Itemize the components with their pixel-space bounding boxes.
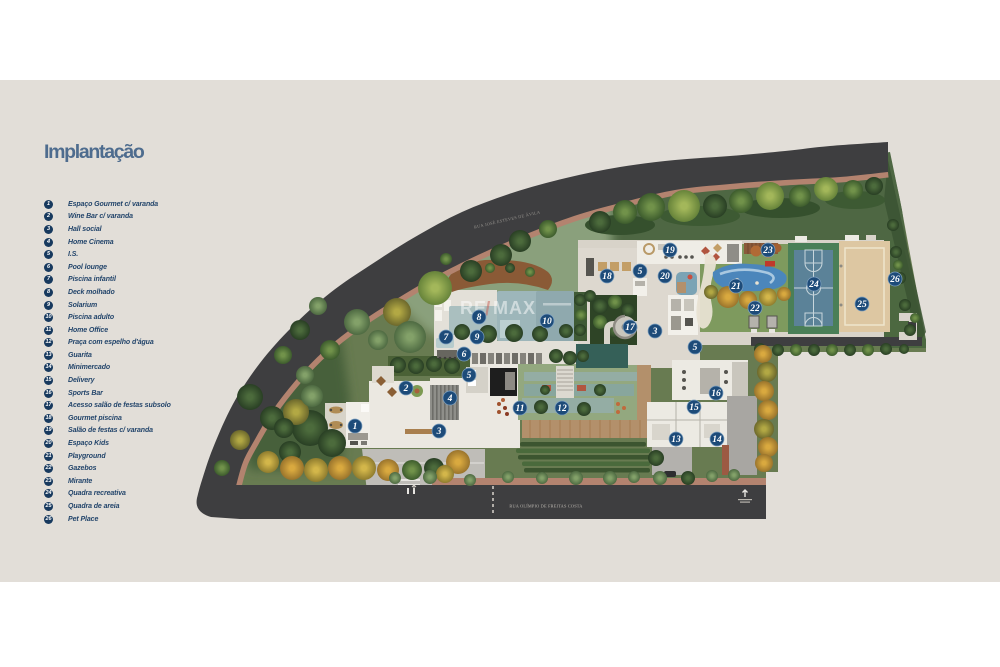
svg-text:22: 22 (749, 304, 760, 314)
svg-text:17: 17 (625, 323, 636, 333)
svg-text:19: 19 (665, 246, 675, 256)
svg-text:6: 6 (462, 350, 467, 360)
svg-text:18: 18 (602, 272, 612, 282)
svg-text:RUA OLÍMPIO DE FREITAS COSTA: RUA OLÍMPIO DE FREITAS COSTA (509, 504, 583, 509)
svg-text:9: 9 (475, 333, 480, 343)
svg-text:3: 3 (652, 327, 658, 337)
svg-text:5: 5 (638, 267, 643, 277)
svg-text:2: 2 (403, 384, 409, 394)
svg-text:10: 10 (542, 317, 552, 327)
svg-text:23: 23 (762, 246, 773, 256)
svg-text:20: 20 (659, 272, 670, 282)
svg-text:8: 8 (477, 313, 482, 323)
svg-text:5: 5 (467, 371, 472, 381)
svg-text:26: 26 (889, 275, 900, 285)
svg-text:21: 21 (730, 282, 741, 292)
svg-text:3: 3 (436, 427, 442, 437)
svg-text:11: 11 (516, 404, 525, 414)
svg-text:13: 13 (671, 435, 681, 445)
svg-text:5: 5 (693, 343, 698, 353)
svg-text:14: 14 (712, 435, 722, 445)
svg-text:15: 15 (689, 403, 699, 413)
svg-text:MAX: MAX (493, 298, 536, 318)
svg-text:24: 24 (808, 280, 819, 290)
svg-text:1: 1 (353, 422, 358, 432)
svg-text:12: 12 (557, 404, 567, 414)
svg-text:4: 4 (447, 394, 453, 404)
svg-text:25: 25 (856, 300, 867, 310)
svg-text:16: 16 (711, 389, 721, 399)
